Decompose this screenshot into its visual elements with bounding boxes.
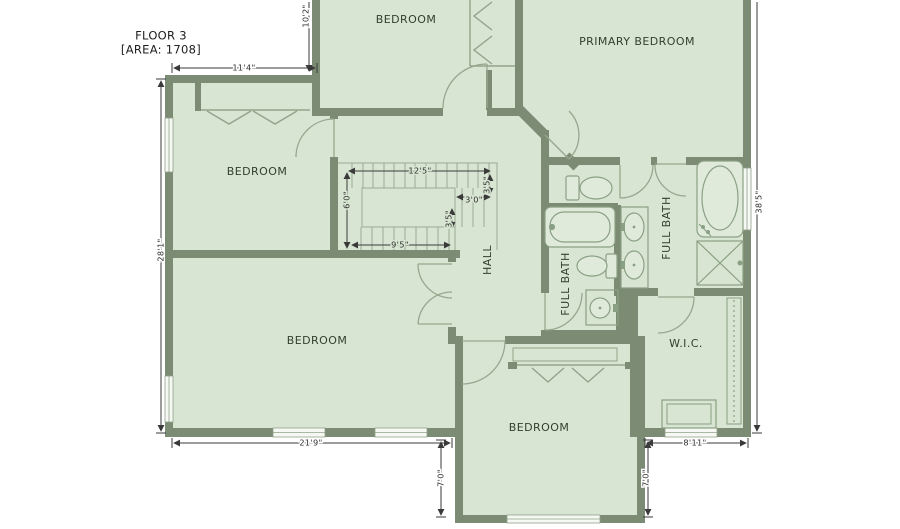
room-label-bedroom-bottom: BEDROOM [509,421,570,434]
bathtub-icon [545,207,615,247]
floor-title: FLOOR 3 [135,29,187,43]
faucet-icon [621,223,625,231]
dim-bottom-left-height: 7'0" [436,469,446,487]
window [165,118,173,172]
room-label-bedroom-left: BEDROOM [227,165,288,178]
faucet-icon [550,225,555,230]
dim-bottom-width: 21'9" [299,438,322,448]
toilet-icon [566,176,612,200]
soaking-tub-icon [697,161,743,237]
room-label-full-bath-left: FULL BATH [559,252,572,315]
faucet-icon [613,304,618,312]
dim-stair-return-width: 3'0" [465,195,483,205]
shower-head-icon [738,261,743,266]
dim-top-height: 10'2" [301,4,311,27]
window [743,168,751,230]
toilet-icon [577,254,617,278]
window [507,515,600,523]
dim-right-height: 38'5" [754,190,764,213]
room-label-full-bath-right: FULL BATH [660,196,673,259]
dim-stair-mid-height: 3'5" [444,210,454,228]
room-label-primary-bedroom: PRIMARY BEDROOM [579,35,695,48]
dim-stair-top-width: 12'5" [408,166,431,176]
dim-stair-left-height: 6'0" [342,191,352,209]
floor-plan-drawing: 12'5" 6'0" 9'5" 3'0" 3'5" 3'5" [0,0,900,529]
floor-plan: 12'5" 6'0" 9'5" 3'0" 3'5" 3'5" [0,0,900,529]
window [375,428,427,437]
room-label-bedroom-big: BEDROOM [287,334,348,347]
dim-stair-right-height: 3'5" [482,176,492,194]
dim-bottom-right-height: 7'0" [641,469,651,487]
room-label-hall: HALL [481,245,494,275]
room-label-bedroom-top: BEDROOM [376,13,437,26]
dim-right-height-line [752,2,762,433]
window [273,428,325,437]
room-label-wic: W.I.C. [669,337,703,350]
window [665,428,717,437]
faucet-icon [621,261,625,269]
dim-top-width: 11'4" [232,63,255,73]
dim-left-height: 28'1" [156,238,166,261]
window [165,376,173,422]
dim-bottom-right-width: 8'11" [683,438,706,448]
floor-area-label: [AREA: 1708] [121,43,201,57]
dim-stair-bottom-width: 9'5" [391,240,409,250]
